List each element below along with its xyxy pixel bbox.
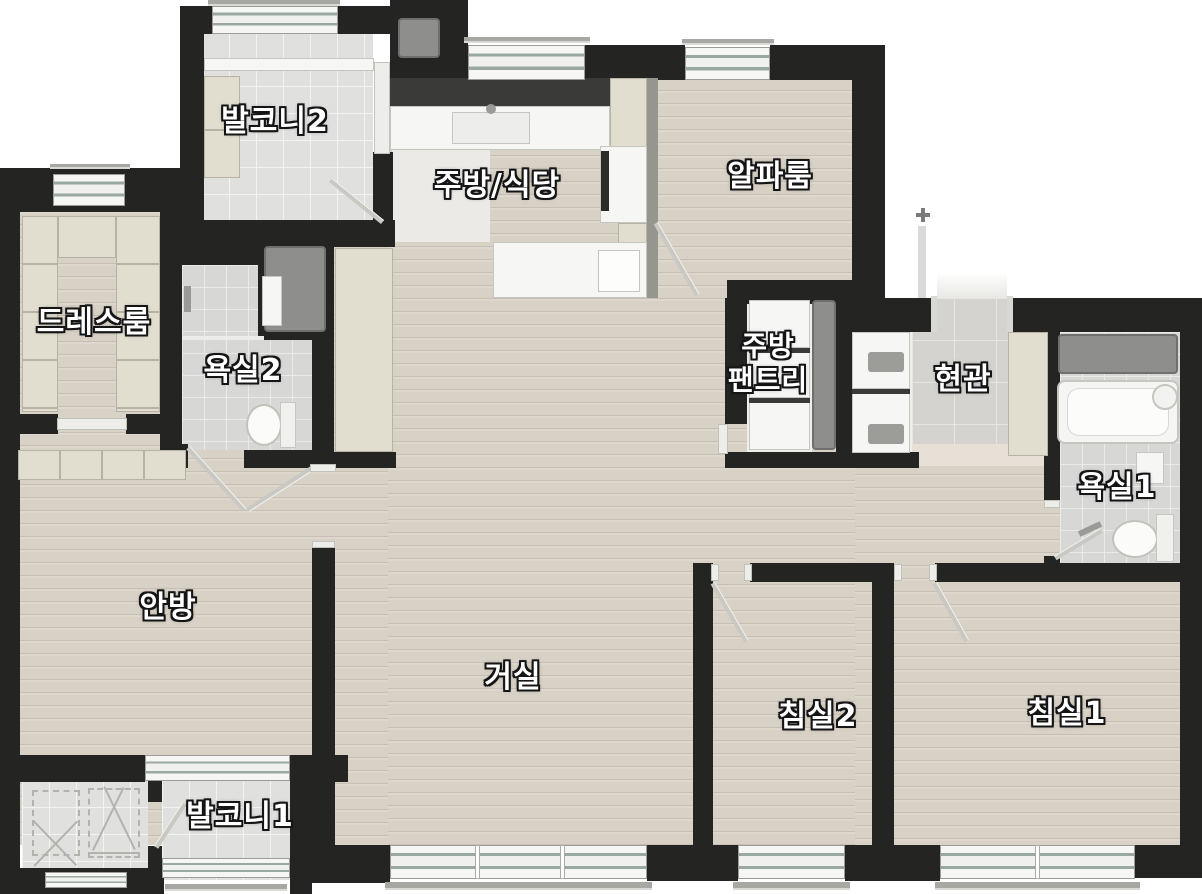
wardrobe bbox=[58, 216, 116, 258]
railing bbox=[682, 39, 774, 45]
sink-icon bbox=[1152, 384, 1178, 410]
toilet-icon bbox=[1112, 520, 1158, 558]
wall bbox=[845, 845, 940, 881]
wall bbox=[180, 6, 204, 247]
faucet-icon bbox=[486, 104, 496, 114]
door-leaf bbox=[57, 418, 127, 430]
wall bbox=[244, 450, 316, 468]
balcony2-sill bbox=[204, 58, 374, 71]
railing bbox=[165, 884, 287, 891]
cabinet-side-panel bbox=[647, 78, 658, 298]
tall-cabinet bbox=[335, 248, 393, 452]
room-label-bed2: 침실2 bbox=[778, 700, 857, 734]
wall bbox=[332, 452, 396, 468]
window-living bbox=[390, 845, 647, 879]
survey-marker-icon bbox=[916, 213, 930, 217]
wall bbox=[935, 563, 1202, 582]
door-frame bbox=[931, 296, 937, 332]
room-label-pantry-line1: 주방 bbox=[741, 330, 795, 361]
wall bbox=[312, 332, 334, 466]
door-frame bbox=[929, 564, 937, 581]
door-frame bbox=[1044, 500, 1060, 508]
railing bbox=[50, 164, 130, 169]
shelf-item bbox=[868, 424, 904, 444]
door-frame bbox=[374, 62, 390, 154]
entrance-door bbox=[937, 272, 1007, 298]
wall bbox=[180, 6, 212, 34]
wall bbox=[20, 755, 145, 782]
room-label-master: 안방 bbox=[139, 591, 196, 625]
railing bbox=[385, 882, 652, 890]
wall bbox=[750, 563, 872, 582]
sink-icon bbox=[262, 276, 282, 326]
window bbox=[212, 6, 338, 34]
wall bbox=[1135, 845, 1202, 878]
kitchen-sink-icon bbox=[452, 112, 530, 144]
window bbox=[738, 845, 845, 879]
wall bbox=[148, 846, 162, 870]
window bbox=[45, 872, 127, 888]
wall-master-living bbox=[312, 548, 335, 848]
window bbox=[468, 45, 585, 80]
wall-exterior-right bbox=[1180, 298, 1202, 873]
room-label-balcony1: 발코니1 bbox=[186, 800, 294, 834]
shelf-item bbox=[868, 352, 904, 372]
railing bbox=[464, 37, 590, 43]
door-leaf bbox=[718, 424, 728, 454]
room-label-alpha: 알파룸 bbox=[727, 160, 813, 194]
room-label-balcony2: 발코니2 bbox=[221, 105, 329, 139]
window bbox=[162, 858, 290, 878]
window bbox=[685, 47, 770, 80]
wall bbox=[126, 414, 182, 434]
wall bbox=[18, 414, 58, 434]
room-label-entry: 현관 bbox=[934, 363, 991, 397]
wall bbox=[693, 563, 713, 845]
entry-cabinet bbox=[1008, 332, 1048, 456]
duct-shaft-icon bbox=[812, 300, 836, 450]
door-frame bbox=[310, 464, 336, 472]
room-label-bed1: 침실1 bbox=[1027, 697, 1106, 731]
shelf-gap bbox=[749, 398, 810, 403]
door-frame bbox=[894, 564, 902, 581]
duct-shaft-icon bbox=[1058, 334, 1178, 374]
floor-plan: 발코니2 주방/식당 알파룸 드레스룸 욕실2 주방 팬트리 현관 욕실1 안방… bbox=[0, 0, 1202, 894]
room-label-kitchen: 주방/식당 bbox=[434, 169, 560, 203]
wall bbox=[1010, 298, 1202, 332]
room-label-bath2: 욕실2 bbox=[203, 354, 282, 388]
wall bbox=[872, 563, 894, 845]
shower-partition bbox=[182, 336, 264, 340]
wall bbox=[852, 45, 885, 307]
shoe-cabinet bbox=[852, 393, 910, 453]
wall bbox=[148, 780, 162, 802]
wall bbox=[836, 298, 935, 332]
railing bbox=[733, 882, 850, 890]
wall bbox=[290, 780, 312, 894]
shelf-gap bbox=[852, 389, 910, 394]
wall bbox=[647, 845, 738, 881]
room-label-bath1: 욕실1 bbox=[1077, 471, 1156, 505]
room-label-living: 거실 bbox=[484, 661, 541, 695]
wall-exterior-left bbox=[0, 168, 20, 894]
railing bbox=[935, 882, 1140, 890]
island-cooktop bbox=[598, 250, 640, 292]
cooktop-icon bbox=[601, 151, 609, 211]
toilet-icon bbox=[246, 404, 282, 446]
ac-unit-marks bbox=[90, 852, 138, 854]
toilet-tank bbox=[280, 402, 296, 448]
room-label-dress: 드레스룸 bbox=[37, 306, 151, 340]
kitchen-upper-cabinet bbox=[388, 78, 610, 108]
window bbox=[53, 174, 125, 206]
wall bbox=[770, 45, 855, 80]
wall bbox=[160, 247, 264, 265]
sidelight bbox=[918, 226, 926, 298]
window bbox=[145, 755, 290, 781]
wardrobe bbox=[18, 450, 186, 480]
wall bbox=[725, 452, 919, 468]
window-mullion bbox=[560, 845, 565, 879]
duct-shaft-icon bbox=[398, 18, 440, 58]
shower-icon bbox=[184, 286, 191, 312]
window-mullion bbox=[475, 845, 480, 879]
room-label-pantry-line2: 팬트리 bbox=[728, 364, 808, 395]
window-mullion bbox=[1035, 845, 1040, 879]
door-frame bbox=[312, 541, 335, 548]
pantry-shelves bbox=[749, 402, 810, 450]
door-frame bbox=[711, 564, 719, 581]
toilet-tank bbox=[1156, 514, 1174, 562]
door-frame bbox=[744, 564, 752, 581]
wall bbox=[585, 45, 685, 80]
door-frame bbox=[1007, 296, 1013, 332]
